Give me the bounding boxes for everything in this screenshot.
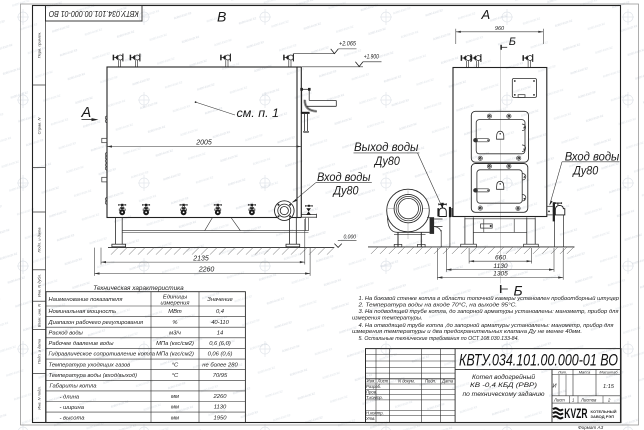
svg-text:Подп.: Подп.	[425, 379, 436, 384]
svg-text:Инв. N дубл.: Инв. N дубл.	[37, 274, 42, 297]
svg-text:Температура воды (вход/выход): Температура воды (вход/выход)	[49, 373, 138, 379]
svg-text:мм: мм	[171, 394, 179, 400]
svg-text:Рабочее давление воды: Рабочее давление воды	[49, 341, 115, 347]
svg-text:Лист: Лист	[377, 379, 389, 384]
svg-text:Ду80: Ду80	[373, 156, 400, 168]
svg-text:Наименование показателя: Наименование показателя	[49, 297, 123, 303]
svg-text:+1.900: +1.900	[364, 55, 380, 61]
svg-text:- высота: - высота	[60, 416, 86, 422]
svg-text:Ду80: Ду80	[571, 165, 598, 177]
svg-text:2005: 2005	[195, 140, 212, 147]
svg-text:3. На подводящей трубе котла,: 3. На подводящей трубе котла, до запорно…	[359, 308, 619, 315]
svg-text:0,4: 0,4	[216, 309, 224, 315]
svg-text:2260: 2260	[213, 394, 228, 400]
svg-text:Единицы: Единицы	[163, 294, 188, 300]
svg-text:Масса: Масса	[579, 369, 591, 374]
svg-text:мм: мм	[171, 415, 179, 421]
svg-text:Утв.: Утв.	[366, 416, 376, 421]
svg-text:°С: °С	[172, 373, 179, 379]
svg-text:Перв. примен.: Перв. примен.	[37, 32, 42, 59]
svg-text:Номинальная мощность: Номинальная мощность	[49, 309, 117, 315]
svg-text:измерения температуры.: измерения температуры.	[352, 315, 423, 321]
svg-text:Лист: Лист	[553, 398, 565, 403]
svg-text:Взам. инв. N: Взам. инв. N	[37, 304, 42, 327]
svg-text:14: 14	[217, 330, 223, 336]
svg-text:Подп. и дата: Подп. и дата	[37, 338, 42, 364]
svg-text:Подп. и дата: Подп. и дата	[37, 227, 42, 253]
svg-text:0.000: 0.000	[344, 235, 357, 241]
svg-text:0,06 (0,6): 0,06 (0,6)	[208, 352, 233, 358]
svg-text:КВТУ.034.101.00.000-01 ВО: КВТУ.034.101.00.000-01 ВО	[459, 352, 618, 370]
svg-text:В: В	[217, 9, 226, 25]
svg-text:ЗАВОД РЭП: ЗАВОД РЭП	[591, 414, 615, 419]
svg-text:Вход воды: Вход воды	[317, 172, 371, 184]
svg-text:0,6 (6,0): 0,6 (6,0)	[209, 341, 231, 347]
svg-text:%: %	[172, 320, 177, 326]
svg-text:70/95: 70/95	[213, 373, 228, 379]
svg-text:Значение: Значение	[207, 297, 233, 303]
svg-text:МПа (кгс/см2): МПа (кгс/см2)	[156, 352, 194, 358]
svg-text:2135: 2135	[192, 255, 209, 262]
svg-text:Н.контр.: Н.контр.	[366, 411, 384, 416]
svg-text:Изм.: Изм.	[367, 379, 376, 384]
svg-text:м3/ч: м3/ч	[169, 330, 181, 336]
svg-text:измерения: измерения	[160, 301, 189, 307]
svg-text:660: 660	[495, 254, 506, 261]
svg-text:И: И	[552, 384, 556, 390]
svg-text:КВТУ.034.101.00.000-01 ВО: КВТУ.034.101.00.000-01 ВО	[49, 9, 139, 19]
svg-text:А: А	[481, 7, 491, 22]
svg-text:по техническому заданию: по техническому заданию	[463, 390, 545, 398]
svg-text:1130: 1130	[493, 263, 508, 270]
svg-text:МПа (кгс/см2): МПа (кгс/см2)	[156, 341, 194, 347]
svg-text:см. п. 1: см. п. 1	[237, 108, 280, 120]
svg-text:Техническая характеристика: Техническая характеристика	[93, 285, 184, 292]
svg-text:Лит.: Лит.	[557, 369, 567, 374]
svg-text:1. На боковой стенке котла в: 1. На боковой стенке котла в области топ…	[359, 295, 620, 302]
svg-text:2260: 2260	[198, 267, 215, 274]
svg-text:мм: мм	[171, 405, 179, 411]
svg-text:измерения температуры и два пр: измерения температуры и два предохраните…	[352, 329, 582, 335]
svg-text:Диапазон рабочего регулировани: Диапазон рабочего регулирования	[48, 320, 144, 326]
svg-text:Пров.: Пров.	[366, 390, 377, 395]
svg-text:Т.контр.: Т.контр.	[366, 395, 383, 400]
svg-text:МВт: МВт	[168, 309, 182, 315]
svg-text:- ширина: - ширина	[60, 405, 85, 411]
svg-text:1130: 1130	[214, 405, 227, 411]
svg-text:Ду80: Ду80	[332, 186, 359, 198]
svg-text:- длина: - длина	[60, 394, 80, 400]
svg-text:КВ -0,4 КБД (РВР): КВ -0,4 КБД (РВР)	[470, 382, 537, 389]
svg-text:Инв. N подл.: Инв. N подл.	[37, 386, 42, 409]
svg-text:Листов: Листов	[580, 398, 597, 403]
svg-text:5. Остальные технические треб: 5. Остальные технические требования по О…	[359, 336, 520, 342]
svg-text:Гидравлическое сопротивление к: Гидравлическое сопротивление котла	[49, 352, 156, 358]
svg-text:N докум.: N докум.	[398, 379, 415, 384]
svg-text:Температура уходящих газов: Температура уходящих газов	[49, 362, 131, 368]
svg-text:Габариты котла: Габариты котла	[50, 384, 98, 390]
svg-text:Выход воды: Выход воды	[354, 142, 419, 154]
svg-text:+2.065: +2.065	[339, 42, 357, 48]
svg-text:Дата: Дата	[441, 379, 454, 384]
svg-text:Расход воды: Расход воды	[49, 330, 84, 336]
svg-text:не более 280: не более 280	[202, 362, 238, 368]
svg-text:Масштаб: Масштаб	[599, 369, 618, 374]
svg-text:1: 1	[572, 398, 574, 403]
svg-text:Формат А3: Формат А3	[578, 425, 604, 430]
svg-text:°С: °С	[172, 362, 179, 368]
svg-text:Разраб.: Разраб.	[366, 384, 381, 389]
svg-text:KVZR: KVZR	[564, 406, 587, 421]
svg-text:2. Температура воды на входе: 2. Температура воды на входе 70°С, на вы…	[357, 302, 517, 308]
svg-text:4. На отводящей трубе котла ,: 4. На отводящей трубе котла ,до запорной…	[359, 322, 614, 329]
svg-text:Справ. N: Справ. N	[37, 118, 42, 135]
svg-text:1305: 1305	[493, 271, 508, 278]
svg-text:А: А	[81, 105, 92, 121]
svg-text:1950: 1950	[214, 415, 228, 421]
svg-text:40-110: 40-110	[211, 320, 229, 326]
svg-text:1:15: 1:15	[603, 384, 615, 390]
svg-text:960: 960	[495, 26, 505, 32]
svg-text:Котел водогрейный: Котел водогрейный	[472, 373, 535, 381]
svg-text:Б: Б	[509, 36, 516, 48]
